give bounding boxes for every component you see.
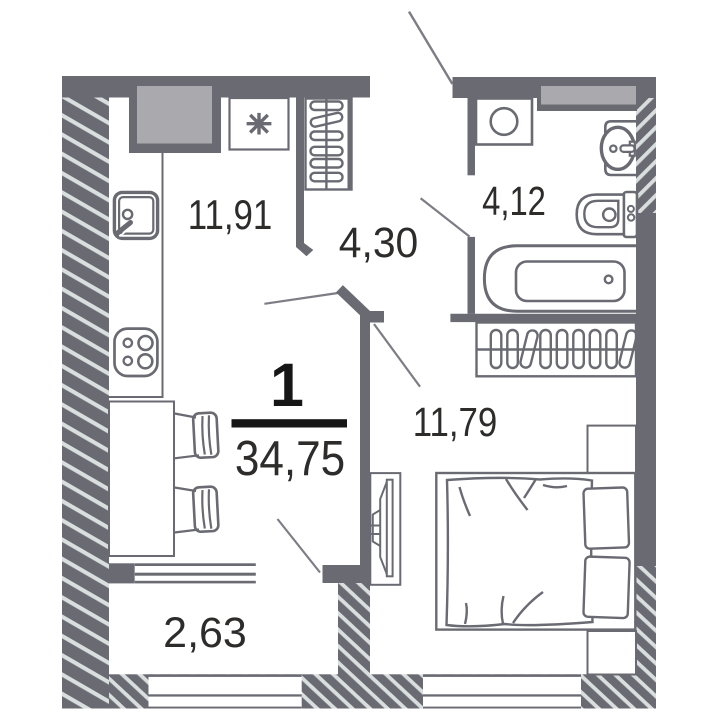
- svg-text:4,30: 4,30: [339, 218, 418, 266]
- svg-text:4,12: 4,12: [482, 177, 546, 223]
- svg-text:2,63: 2,63: [163, 609, 247, 657]
- svg-text:11,91: 11,91: [188, 192, 273, 239]
- svg-text:34,75: 34,75: [235, 431, 345, 486]
- svg-text:1: 1: [270, 351, 304, 419]
- svg-text:11,79: 11,79: [413, 400, 498, 445]
